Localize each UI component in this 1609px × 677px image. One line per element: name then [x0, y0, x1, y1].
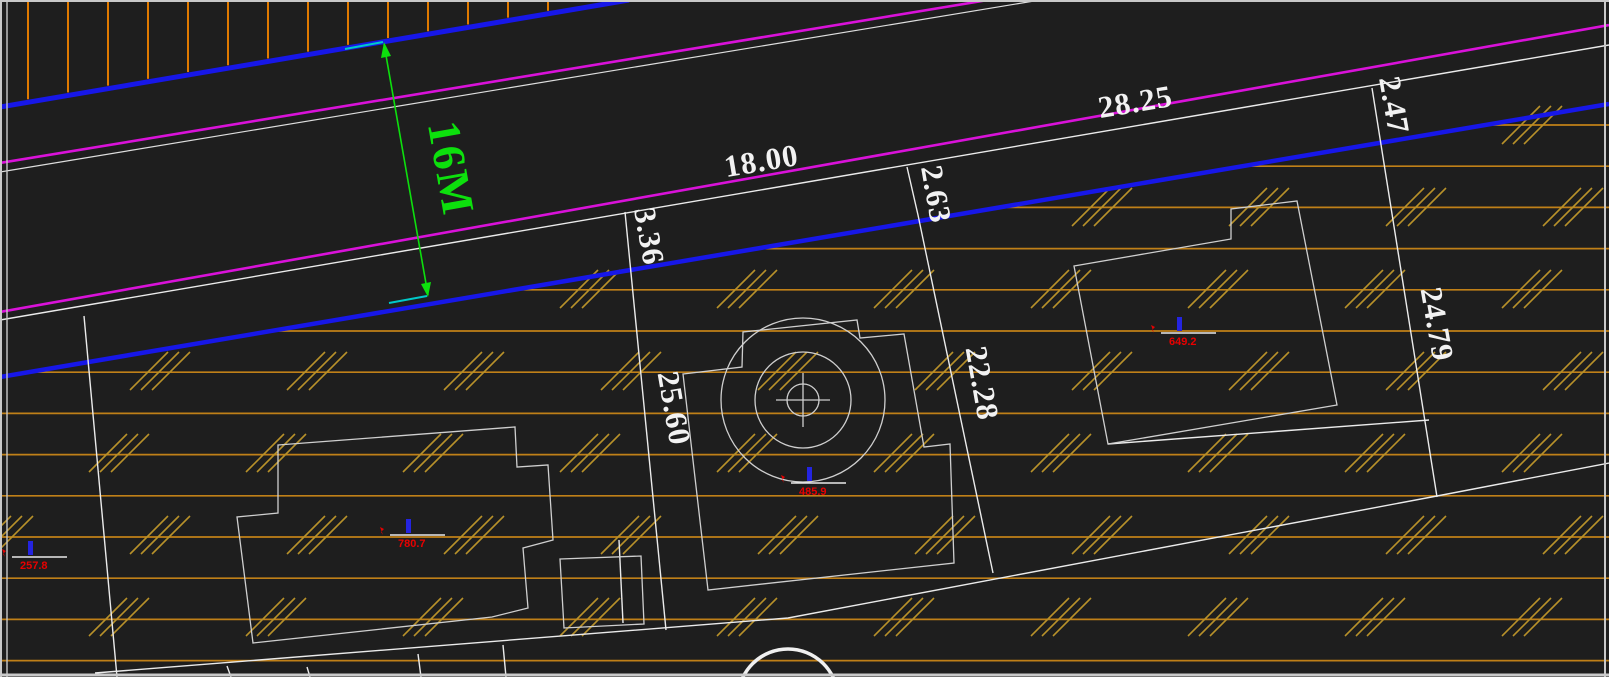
spot-blue-tick [28, 541, 33, 555]
site-plan-drawing[interactable]: 16M 18.00 28.25 2.47 3.36 2.63 25.60 22.… [0, 0, 1609, 677]
spot-blue-tick [807, 467, 812, 481]
spot-elevation-value: 257.8 [20, 560, 48, 572]
spot-elevation-value: 780.7 [398, 538, 426, 550]
spot-blue-tick [1177, 317, 1182, 331]
spot-elevation-value: 649.2 [1169, 336, 1197, 348]
spot-blue-tick [406, 519, 411, 533]
canvas-background [0, 0, 1609, 677]
spot-elevation-value: 485.9 [799, 486, 827, 498]
cad-viewport[interactable]: 16M 18.00 28.25 2.47 3.36 2.63 25.60 22.… [0, 0, 1609, 677]
